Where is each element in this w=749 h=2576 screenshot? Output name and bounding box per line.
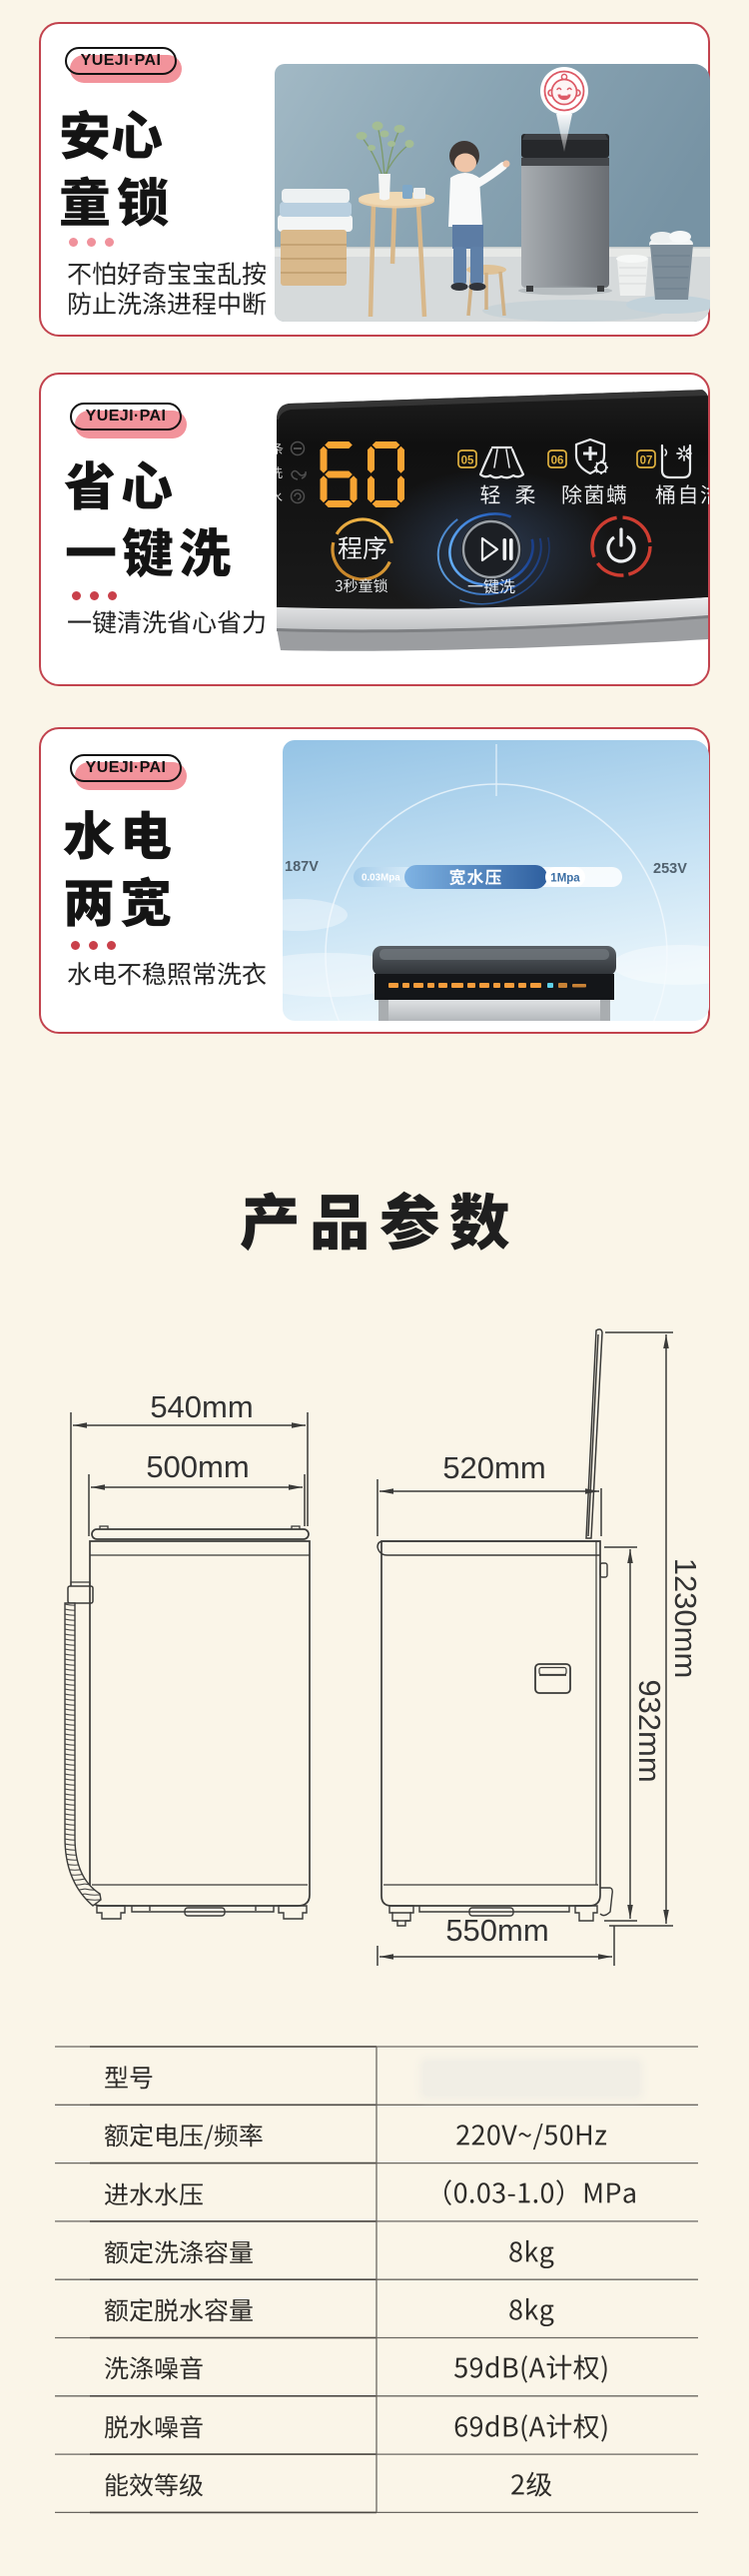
svg-text:520mm: 520mm xyxy=(442,1450,545,1485)
svg-text:550mm: 550mm xyxy=(445,1913,548,1948)
svg-text:540mm: 540mm xyxy=(150,1389,253,1424)
svg-text:253V: 253V xyxy=(653,861,687,877)
svg-text:05: 05 xyxy=(461,455,474,467)
svg-text:1230mm: 1230mm xyxy=(668,1558,703,1679)
svg-text:500mm: 500mm xyxy=(146,1449,249,1484)
svg-text:932mm: 932mm xyxy=(632,1679,667,1782)
svg-text:1Mpa: 1Mpa xyxy=(550,873,580,885)
svg-text:07: 07 xyxy=(640,455,653,467)
svg-text:187V: 187V xyxy=(285,859,319,875)
svg-text:06: 06 xyxy=(551,455,564,467)
svg-text:0.03Mpa: 0.03Mpa xyxy=(362,873,400,884)
